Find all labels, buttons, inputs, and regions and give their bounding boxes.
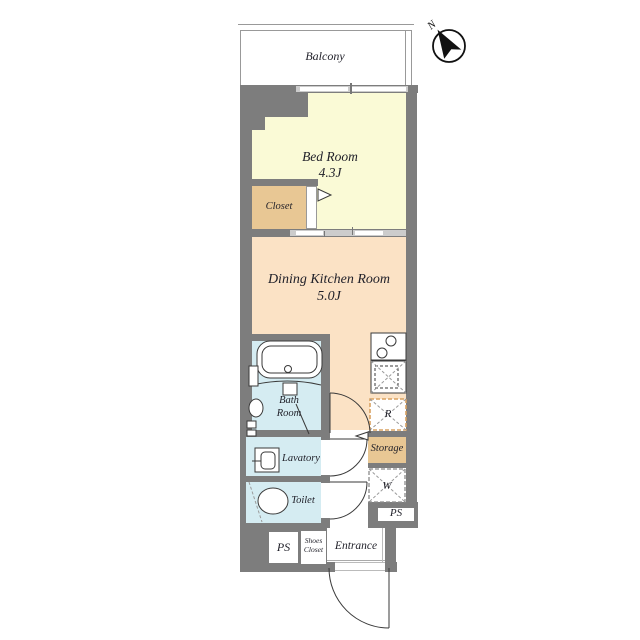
balcony-inner-line: [405, 30, 406, 85]
ps-left-label: PS: [267, 540, 300, 554]
bedroom-size: 4.3J: [251, 165, 409, 181]
wall-segment: [321, 334, 330, 437]
storage-label: Storage: [366, 443, 408, 456]
bathroom-label: Bath Room: [259, 395, 319, 420]
ps-right-label: PS: [376, 507, 416, 520]
entrance-door: [329, 568, 389, 628]
refrigerator-label: R: [370, 408, 406, 421]
hallway-floor: [330, 430, 368, 528]
entrance-opening-line: [335, 570, 385, 571]
wall-segment: [248, 334, 330, 341]
wall-step: [252, 117, 265, 130]
shoes-closet-label: Shoes Closet: [300, 536, 327, 555]
toilet-label: Toilet: [288, 495, 318, 508]
closet-door: [306, 186, 317, 229]
balcony-outer-edge: [238, 24, 414, 25]
dining-name: Dining Kitchen Room: [252, 272, 406, 289]
sliding-door-panel: [355, 231, 383, 235]
balcony-label: Balcony: [250, 49, 400, 63]
window-tick: [350, 83, 352, 94]
entrance-opening-line: [335, 562, 385, 563]
window-glass: [352, 87, 406, 91]
dining-kitchen-label: Dining Kitchen Room 5.0J: [252, 272, 406, 306]
wall-step: [252, 93, 308, 117]
wall-segment: [252, 430, 321, 437]
entrance-step-line: [327, 560, 385, 561]
sliding-door-tick: [352, 227, 353, 235]
lavatory-label: Lavatory: [281, 453, 321, 466]
bedroom-label: Bed Room 4.3J: [251, 149, 409, 181]
washer-label: W: [369, 480, 405, 493]
floor-plan: N Balcony Bed Room 4.3J Closet Dining Ki…: [0, 0, 640, 640]
closet-label: Closet: [252, 201, 306, 214]
north-compass-icon: N: [424, 18, 465, 62]
entrance-label: Entrance: [327, 540, 385, 554]
compass-n-label: N: [424, 18, 439, 33]
sliding-door-panel: [296, 231, 323, 235]
toilet-door-opening: [321, 483, 330, 518]
dining-size: 5.0J: [252, 289, 406, 306]
window-glass: [300, 87, 348, 91]
wall-segment: [385, 562, 397, 572]
wall-segment: [385, 528, 396, 566]
bedroom-name: Bed Room: [251, 149, 409, 165]
lavatory-door-opening: [321, 440, 330, 475]
